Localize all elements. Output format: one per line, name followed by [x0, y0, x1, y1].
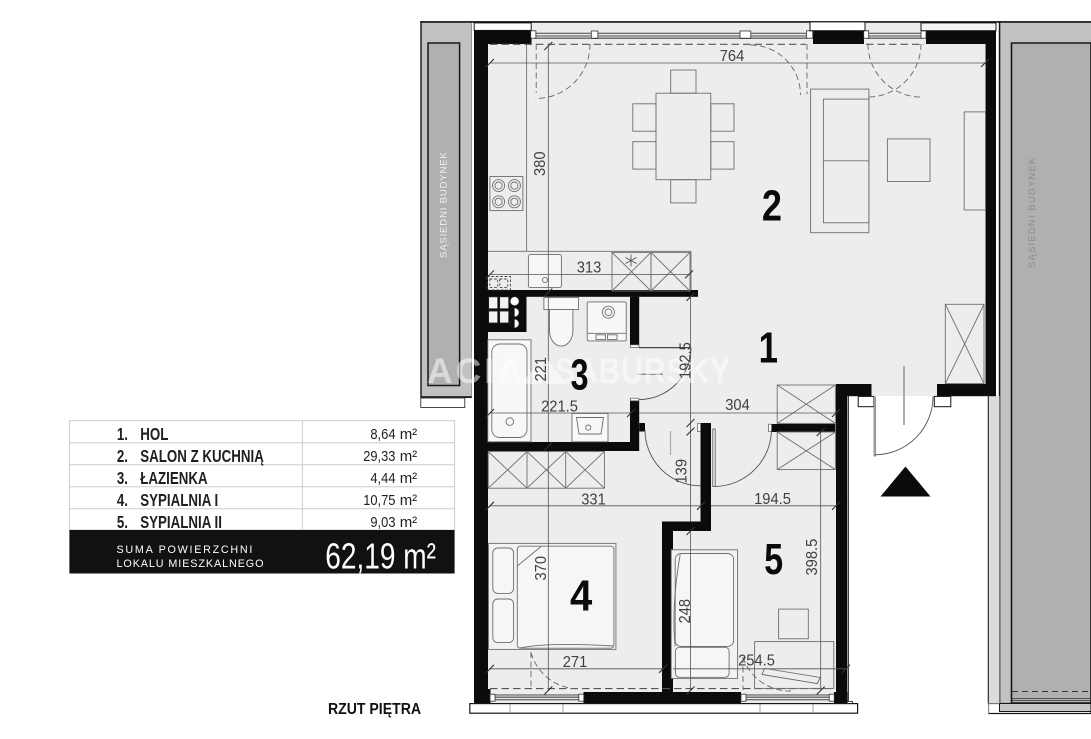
svg-text:1.: 1.: [117, 425, 128, 444]
svg-text:SALON Z KUCHNIĄ: SALON Z KUCHNIĄ: [140, 447, 264, 466]
svg-text:SĄSIEDNI BUDYNEK: SĄSIEDNI BUDYNEK: [1027, 157, 1038, 268]
svg-text:m²: m²: [400, 448, 418, 465]
svg-text:254.5: 254.5: [738, 652, 775, 670]
svg-text:LOKALU MIESZKALNEGO: LOKALU MIESZKALNEGO: [117, 558, 265, 570]
svg-text:370: 370: [533, 556, 551, 581]
svg-text:1: 1: [759, 324, 778, 373]
svg-text:SYPIALNIA II: SYPIALNIA II: [140, 513, 222, 532]
svg-text:313: 313: [577, 259, 602, 277]
svg-text:10,75: 10,75: [363, 492, 396, 508]
svg-text:4,44: 4,44: [370, 470, 395, 486]
svg-text:m²: m²: [400, 514, 418, 531]
svg-text:4: 4: [570, 571, 593, 620]
svg-text:139: 139: [673, 459, 691, 484]
svg-text:221: 221: [532, 357, 550, 382]
svg-text:SĄSIEDNI BUDYNEK: SĄSIEDNI BUDYNEK: [439, 151, 450, 258]
svg-text:2: 2: [762, 183, 782, 231]
svg-text:304: 304: [725, 396, 750, 414]
svg-text:m²: m²: [400, 470, 418, 487]
svg-text:62,19 m²: 62,19 m²: [325, 536, 436, 576]
svg-text:194.5: 194.5: [754, 490, 791, 508]
svg-text:248: 248: [677, 599, 695, 624]
svg-text:192.5: 192.5: [677, 342, 695, 379]
svg-text:ACIA: ACIA: [427, 351, 526, 391]
svg-text:SYPIALNIA I: SYPIALNIA I: [140, 491, 218, 510]
svg-text:RZUT PIĘTRA: RZUT PIĘTRA: [328, 700, 421, 718]
svg-text:331: 331: [581, 491, 606, 509]
svg-text:3.: 3.: [117, 469, 128, 488]
svg-text:9,03: 9,03: [370, 514, 395, 530]
svg-text:398.5: 398.5: [804, 539, 822, 576]
svg-text:SUMA POWIERZCHNI: SUMA POWIERZCHNI: [117, 544, 255, 556]
svg-text:3: 3: [571, 351, 589, 400]
svg-text:29,33: 29,33: [363, 448, 396, 464]
svg-text:ŁAZIENKA: ŁAZIENKA: [140, 469, 208, 488]
svg-text:764: 764: [720, 47, 745, 65]
svg-text:5.: 5.: [117, 513, 128, 532]
svg-text:8,64: 8,64: [370, 426, 395, 442]
svg-text:5: 5: [764, 536, 783, 584]
svg-text:380: 380: [531, 151, 549, 176]
svg-text:221.5: 221.5: [541, 398, 578, 416]
svg-text:2.: 2.: [117, 447, 128, 466]
svg-text:271: 271: [563, 654, 588, 672]
svg-text:HOL: HOL: [140, 425, 168, 444]
svg-text:m²: m²: [400, 492, 418, 509]
svg-text:4.: 4.: [117, 491, 128, 510]
svg-text:m²: m²: [400, 426, 418, 443]
